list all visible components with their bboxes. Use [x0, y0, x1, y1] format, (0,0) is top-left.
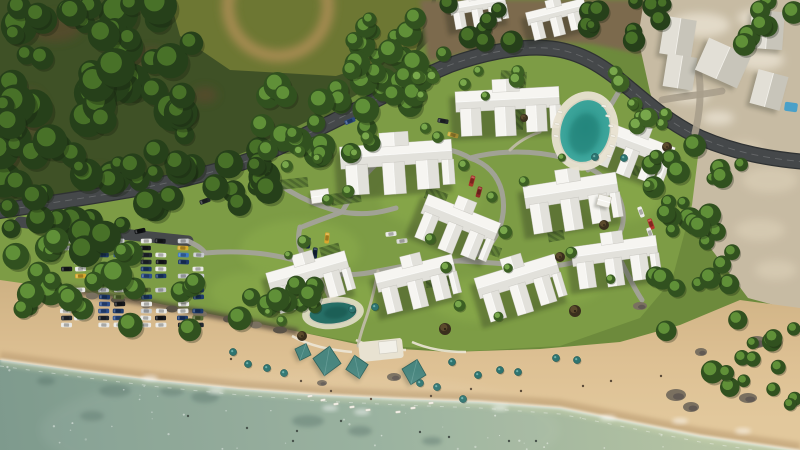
- person: [610, 380, 612, 382]
- neighbor-pool: [784, 102, 798, 113]
- gazebo: [555, 252, 565, 262]
- car: [192, 309, 203, 314]
- car: [98, 309, 109, 314]
- person: [230, 358, 232, 360]
- person: [520, 390, 522, 392]
- car: [61, 316, 72, 321]
- neighbor-building: [659, 53, 697, 95]
- rock: [86, 293, 98, 300]
- beach-pavilion: [378, 340, 397, 354]
- car: [99, 294, 110, 299]
- person: [660, 375, 662, 377]
- car: [192, 267, 203, 272]
- car: [113, 294, 124, 299]
- car: [75, 274, 86, 279]
- car: [98, 316, 109, 321]
- car: [141, 302, 152, 307]
- car: [155, 287, 166, 292]
- gazebo: [599, 220, 609, 230]
- car: [141, 273, 152, 278]
- gazebo: [297, 331, 307, 341]
- car: [178, 252, 189, 257]
- car: [193, 252, 204, 257]
- rock: [166, 306, 178, 313]
- car: [98, 323, 109, 328]
- car: [324, 232, 330, 243]
- car: [155, 274, 166, 279]
- car: [99, 302, 110, 307]
- car: [140, 315, 151, 320]
- car: [178, 260, 189, 265]
- car: [141, 239, 152, 244]
- gazebo: [569, 305, 581, 317]
- car: [178, 239, 189, 244]
- car: [141, 267, 152, 272]
- car: [156, 308, 167, 313]
- person: [582, 385, 584, 387]
- car: [114, 302, 125, 307]
- car: [177, 246, 188, 251]
- car: [155, 323, 166, 328]
- gazebo: [439, 323, 451, 335]
- car: [177, 308, 188, 313]
- car: [61, 267, 72, 272]
- gazebo: [520, 114, 528, 122]
- car: [156, 260, 167, 265]
- car: [155, 253, 166, 258]
- scene-svg: Beachfront resort master plan - aerial r…: [0, 0, 800, 450]
- car: [155, 316, 166, 321]
- car: [141, 309, 152, 314]
- car: [113, 309, 124, 314]
- car: [155, 267, 166, 272]
- car: [155, 238, 166, 243]
- car: [61, 323, 72, 328]
- rock: [273, 327, 287, 334]
- aerial-site-plan-render: Beachfront resort master plan - aerial r…: [0, 0, 800, 450]
